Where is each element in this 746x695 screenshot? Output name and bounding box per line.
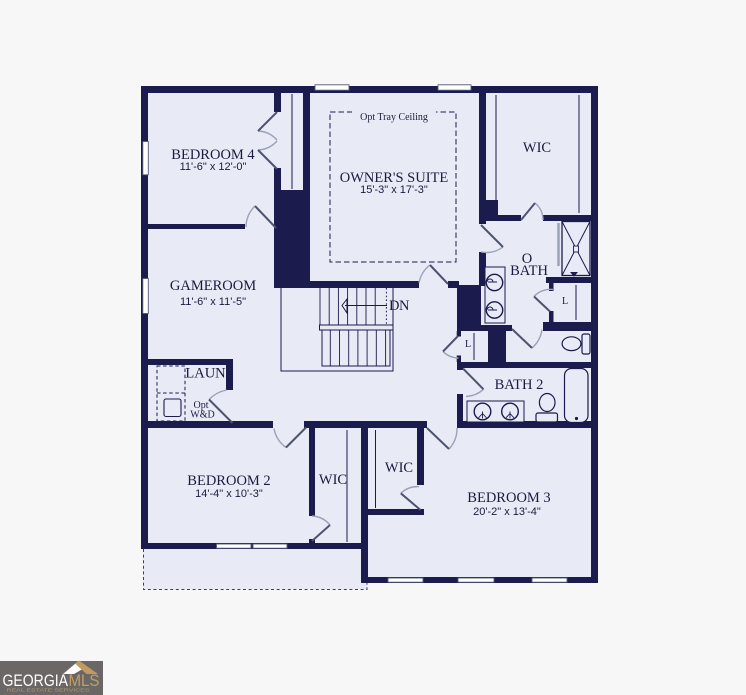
- svg-text:W&D: W&D: [190, 410, 214, 421]
- svg-text:11'-6" x 12'-0": 11'-6" x 12'-0": [180, 161, 247, 173]
- svg-text:DN: DN: [389, 298, 410, 314]
- svg-text:WIC: WIC: [385, 460, 413, 476]
- svg-text:WIC: WIC: [319, 472, 347, 488]
- svg-text:L: L: [465, 339, 471, 350]
- svg-text:Opt Tray Ceiling: Opt Tray Ceiling: [360, 112, 428, 123]
- svg-text:14'-4" x 10'-3": 14'-4" x 10'-3": [195, 488, 263, 500]
- svg-text:BEDROOM 3: BEDROOM 3: [467, 490, 550, 506]
- svg-text:WIC: WIC: [523, 140, 551, 156]
- svg-text:BATH 2: BATH 2: [495, 377, 544, 393]
- svg-text:BATH: BATH: [510, 263, 548, 279]
- svg-text:L: L: [562, 296, 568, 307]
- svg-text:BEDROOM 2: BEDROOM 2: [187, 473, 270, 489]
- svg-text:LAUN: LAUN: [185, 366, 226, 382]
- svg-text:GAMEROOM: GAMEROOM: [170, 278, 256, 294]
- svg-text:11'-6" x 11'-5": 11'-6" x 11'-5": [180, 296, 246, 308]
- svg-text:REAL ESTATE SERVICES: REAL ESTATE SERVICES: [7, 688, 90, 693]
- svg-text:20'-2" x 13'-4": 20'-2" x 13'-4": [473, 506, 541, 518]
- svg-text:15'-3" x 17'-3": 15'-3" x 17'-3": [360, 184, 428, 196]
